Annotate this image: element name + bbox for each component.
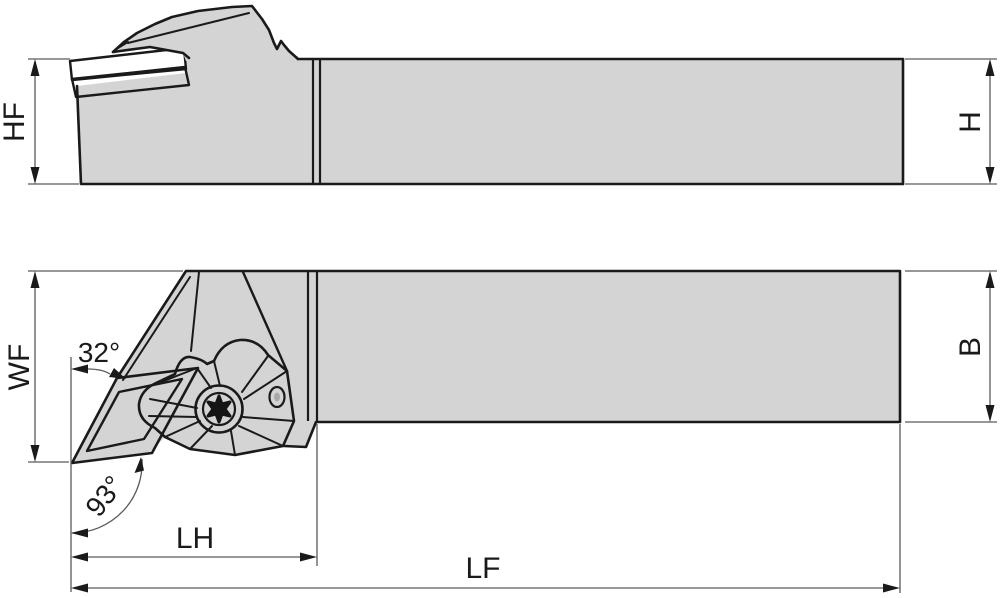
dim-label-lh: LH — [176, 522, 214, 555]
dimension-b: B — [905, 271, 997, 422]
dim-label-h: H — [954, 111, 987, 133]
clamp-screw — [196, 386, 243, 433]
dimension-angle-93: 93° — [71, 457, 144, 538]
dim-label-wf: WF — [3, 344, 36, 391]
angle-label-32: 32° — [78, 337, 120, 368]
side-body — [77, 56, 903, 184]
side-view: HF H — [0, 6, 997, 184]
dimension-h: H — [905, 59, 997, 184]
dim-label-lf: LF — [465, 552, 500, 585]
tool-holder-drawing: HF H — [0, 0, 1000, 598]
dimension-angle-32: 32° — [71, 337, 126, 592]
clamp-pin-center — [274, 393, 280, 402]
dimension-hf: HF — [0, 59, 79, 184]
dim-label-hf: HF — [0, 102, 31, 142]
dim-label-b: B — [954, 337, 987, 357]
technical-drawing-canvas: HF H — [0, 0, 1000, 598]
angle-label-93: 93° — [79, 470, 129, 522]
plan-view: WF B 32° 93° — [3, 271, 997, 593]
